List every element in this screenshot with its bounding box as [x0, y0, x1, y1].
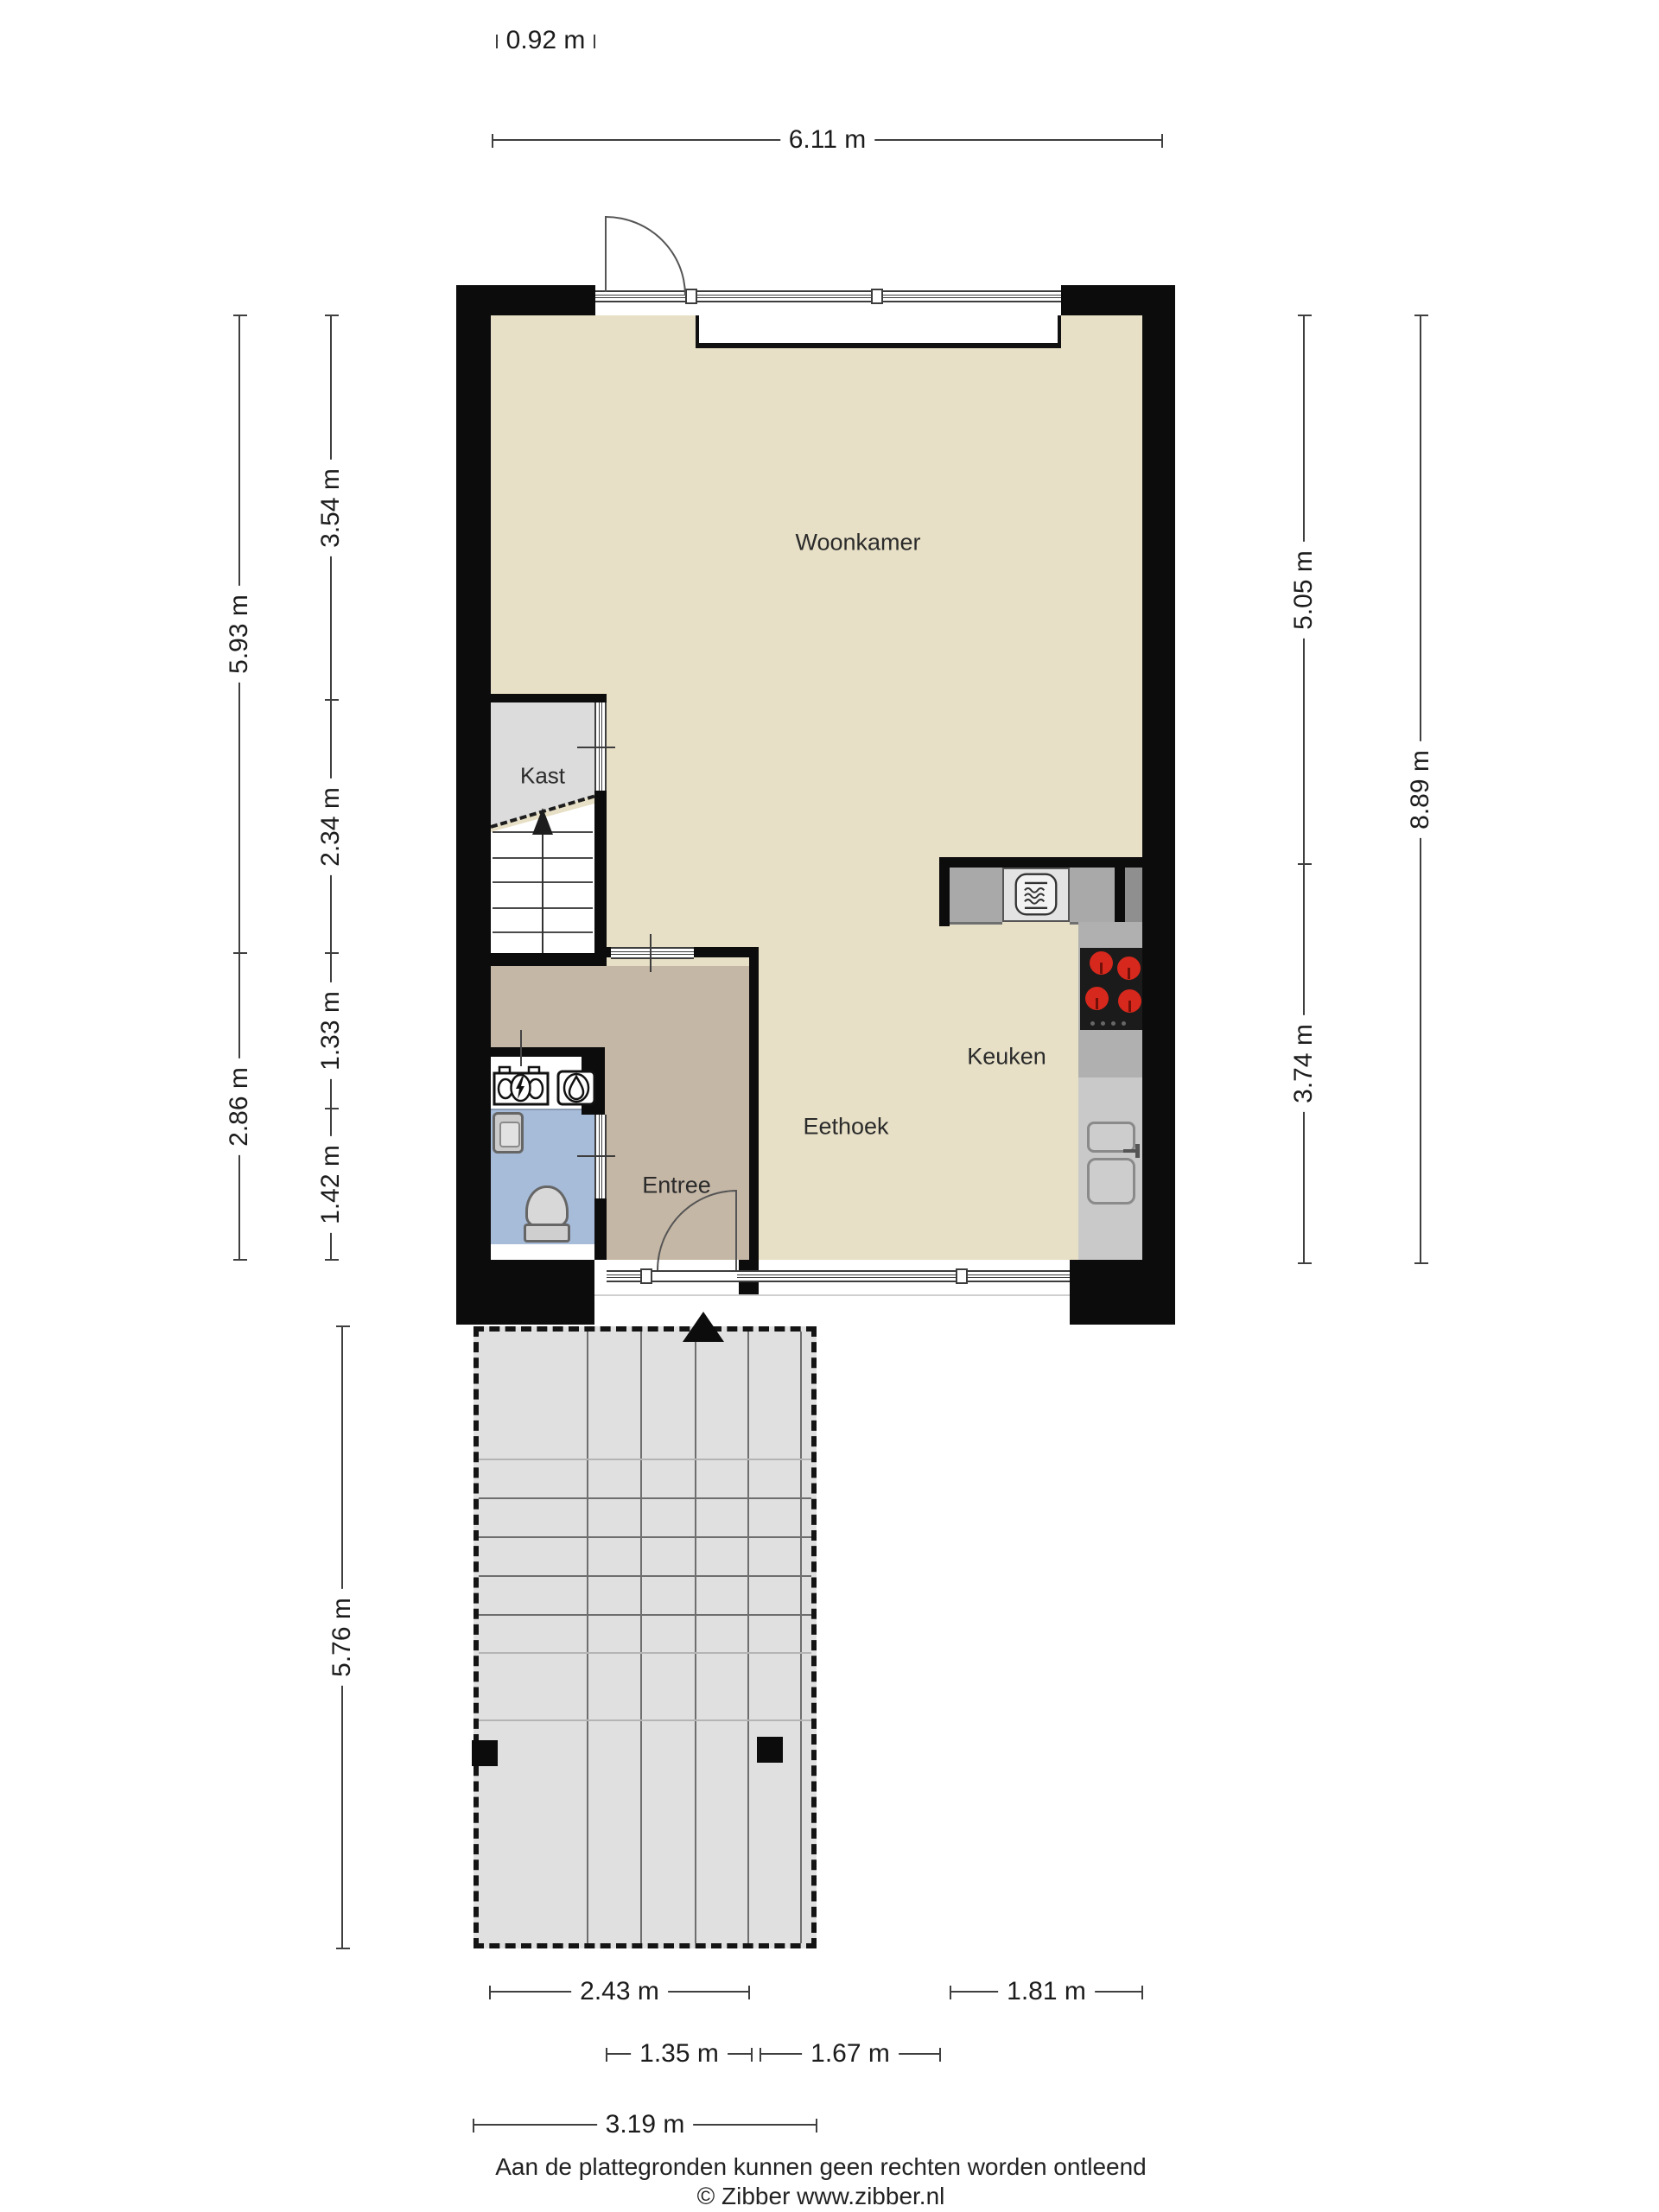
carport-grid-line	[479, 1536, 811, 1538]
dim-label: 6.11 m	[780, 125, 875, 155]
entrance-arrow-icon	[683, 1312, 724, 1342]
top-window-mullion	[685, 289, 697, 304]
dim-right-inner-1: 5.05 m	[1303, 315, 1305, 864]
entree-interior-window	[611, 947, 694, 959]
dim-label: 3.19 m	[597, 2110, 694, 2139]
dim-left-outer-1: 5.93 m	[238, 315, 240, 953]
dim-label: 3.54 m	[316, 460, 346, 556]
carport-grid-line	[747, 1332, 749, 1943]
carport-grid-line	[479, 1575, 811, 1577]
room-label-woonkamer: Woonkamer	[795, 530, 920, 556]
entree-door-threshold	[651, 1270, 737, 1282]
carport-post	[472, 1740, 498, 1766]
room-label-eethoek: Eethoek	[803, 1114, 888, 1141]
cooktop-knob	[1090, 1021, 1095, 1026]
cooktop-knob	[1122, 1021, 1126, 1026]
top-window-mullion	[871, 289, 883, 304]
wall-bottom-right-block	[1070, 1260, 1175, 1325]
dim-label: 8.89 m	[1406, 741, 1435, 838]
floor-plan: 0.92 m 6.11 m 5.93 m 2.86 m 3.54 m 2.34 …	[0, 0, 1659, 2212]
cooktop-knob	[1101, 1021, 1105, 1026]
dim-label: 5.93 m	[225, 586, 254, 683]
dim-left-inner-2: 2.34 m	[330, 700, 332, 953]
toilet-floor-strip	[491, 1244, 594, 1260]
wall-kitchen-left-jog	[939, 857, 950, 926]
dim-label: 0.92 m	[498, 26, 594, 55]
dim-left-inner-4: 1.42 m	[330, 1109, 332, 1260]
carport-area	[474, 1326, 817, 1948]
basin-inner	[499, 1122, 520, 1147]
dim-label: 1.33 m	[316, 982, 346, 1079]
cooktop	[1080, 948, 1142, 1030]
carport-post	[757, 1737, 783, 1763]
dim-left-outer-2: 2.86 m	[238, 953, 240, 1260]
toilet-bowl	[525, 1185, 569, 1229]
burner-icon	[1090, 951, 1113, 975]
carport-grid-line	[800, 1332, 802, 1943]
burner-icon	[1118, 989, 1141, 1013]
dim-label: 1.81 m	[998, 1977, 1095, 2006]
window-sill-inset	[696, 315, 1061, 348]
toilet-tank	[524, 1224, 570, 1243]
dim-top-width: 6.11 m	[493, 139, 1162, 141]
dim-label: 1.35 m	[631, 2039, 728, 2069]
stairs-walkline	[542, 833, 543, 953]
dim-label: 1.67 m	[802, 2039, 899, 2069]
sink-faucet-icon	[1135, 1144, 1140, 1158]
dim-label: 2.86 m	[225, 1058, 254, 1155]
dim-left-inner-1: 3.54 m	[330, 315, 332, 700]
toilet-icon	[524, 1185, 570, 1243]
oven-icon	[1012, 871, 1060, 918]
dim-right-outer: 8.89 m	[1420, 315, 1421, 1263]
kitchen-oven-block	[1002, 868, 1070, 922]
dim-bottom-kitchen: 1.81 m	[950, 1991, 1142, 1993]
entree-window-tick	[650, 934, 652, 972]
carport-grid-line	[479, 1719, 811, 1721]
room-label-kast: Kast	[520, 763, 565, 790]
wall-toilet-right-lower	[594, 1198, 607, 1260]
carport-grid-line	[640, 1332, 642, 1943]
sink-basin	[1087, 1122, 1135, 1153]
kitchen-counter-top-left	[950, 868, 1002, 925]
dim-label: 5.05 m	[1289, 542, 1319, 639]
carport-grid-line	[587, 1332, 588, 1943]
dim-label: 2.34 m	[316, 779, 346, 875]
carport-grid-line	[479, 1614, 811, 1616]
carport-grid-line	[479, 1459, 811, 1460]
dim-top-bay: 0.92 m	[497, 40, 594, 41]
dim-label: 2.43 m	[571, 1977, 668, 2006]
burner-icon	[1085, 987, 1109, 1010]
carport-grid-line	[479, 1652, 811, 1654]
room-label-entree: Entree	[642, 1173, 711, 1199]
wall-bottom-left-block	[456, 1260, 594, 1325]
wall-entree-right	[749, 947, 759, 1296]
meter-cable-line	[520, 1030, 522, 1066]
cooktop-knob	[1111, 1021, 1116, 1026]
facade-outer-line	[594, 1294, 1070, 1296]
kitchen-counter-top-right	[1070, 868, 1115, 925]
wall-right	[1142, 285, 1175, 1325]
dim-right-inner-2: 3.74 m	[1303, 864, 1305, 1263]
burner-icon	[1117, 957, 1141, 980]
dim-carport-height: 5.76 m	[341, 1326, 343, 1948]
kitchen-sink	[1085, 1122, 1142, 1208]
top-door-swing-arc	[606, 216, 686, 296]
carport-grid-line	[695, 1332, 696, 1943]
dim-left-inner-3: 1.33 m	[330, 953, 332, 1109]
hand-basin-icon	[493, 1112, 524, 1154]
room-label-keuken: Keuken	[967, 1044, 1046, 1071]
kast-glass-tick	[577, 747, 615, 748]
dim-bottom-entree-bay: 2.43 m	[490, 1991, 749, 1993]
sink-basin	[1087, 1158, 1135, 1205]
stairs-up-arrow-icon	[532, 808, 553, 835]
carport-grid-line	[479, 1497, 811, 1499]
dim-bottom-entree: 1.35 m	[607, 2053, 752, 2055]
bottom-window-mullion	[956, 1268, 968, 1284]
toilet-door-tick	[577, 1155, 615, 1157]
bottom-window-mullion	[640, 1268, 652, 1284]
dim-bottom-eethoek: 1.67 m	[760, 2053, 940, 2055]
dim-label: 1.42 m	[316, 1136, 346, 1233]
dim-label: 3.74 m	[1289, 1015, 1319, 1112]
wall-stairs-bottom	[491, 953, 607, 966]
wall-kast-top	[491, 694, 607, 702]
footer-disclaimer: Aan de plattegronden kunnen geen rechten…	[0, 2153, 1642, 2181]
wall-left	[456, 285, 491, 1325]
wall-kitchen-top	[939, 857, 1175, 868]
dim-bottom-carport: 3.19 m	[474, 2124, 817, 2126]
dim-label: 5.76 m	[327, 1589, 357, 1686]
utility-meters-icon	[493, 1065, 605, 1108]
footer-copyright: © Zibber www.zibber.nl	[0, 2183, 1642, 2210]
